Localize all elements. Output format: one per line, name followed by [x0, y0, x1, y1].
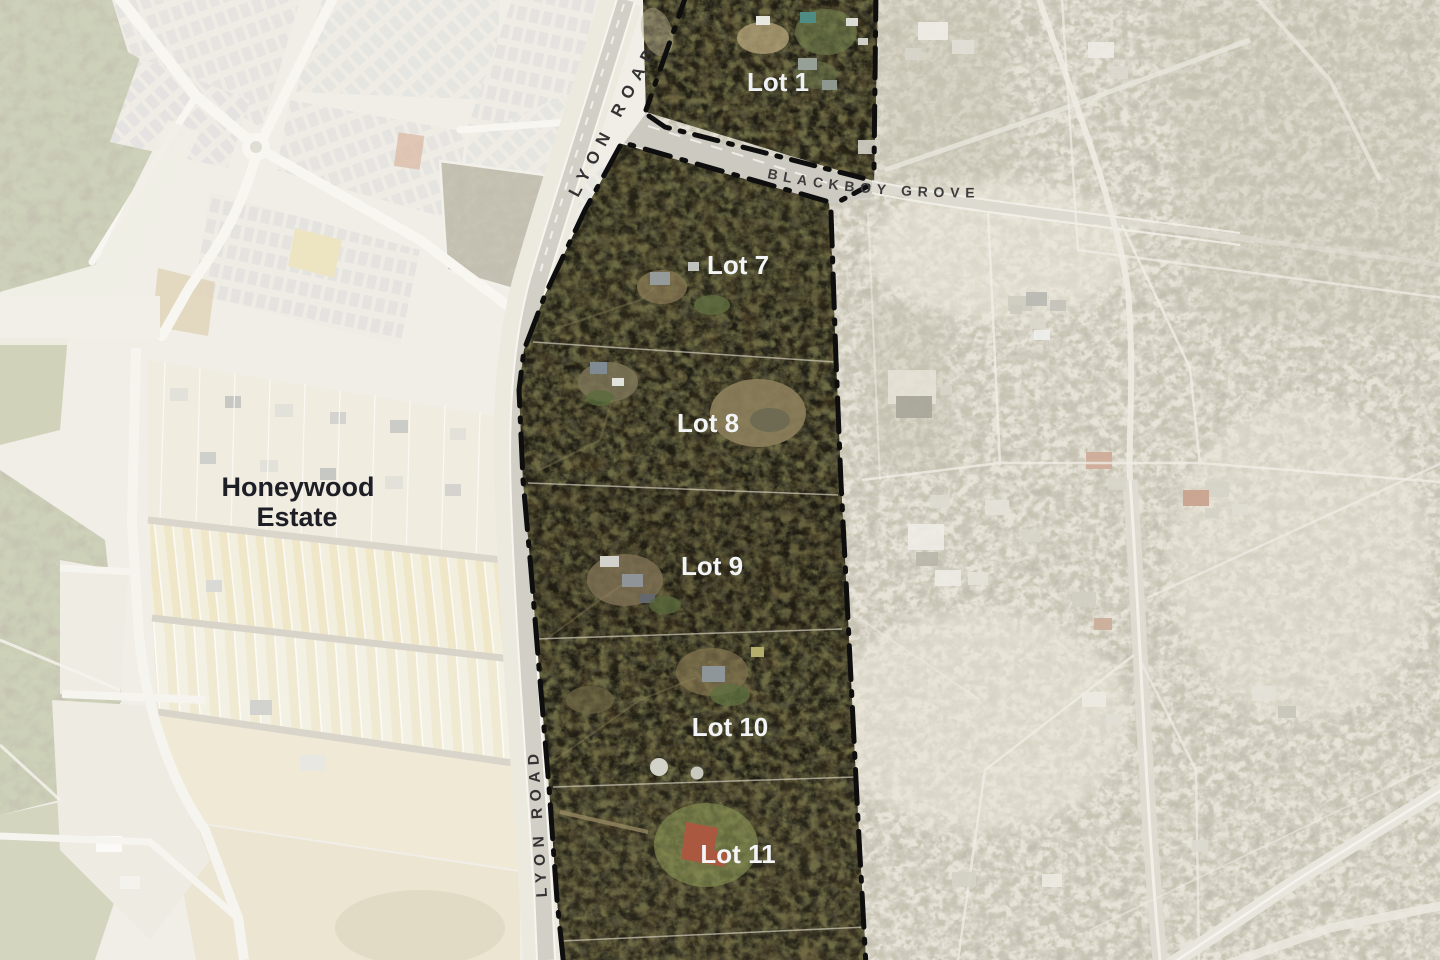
- svg-text:Lot 7: Lot 7: [707, 250, 769, 280]
- svg-text:Estate: Estate: [256, 502, 337, 532]
- svg-text:Lot 11: Lot 11: [700, 839, 775, 869]
- svg-text:Lot 10: Lot 10: [692, 712, 769, 742]
- svg-text:Lot 8: Lot 8: [677, 408, 739, 438]
- svg-text:Lot 1: Lot 1: [747, 67, 809, 97]
- svg-text:Lot 9: Lot 9: [681, 551, 743, 581]
- svg-text:Honeywood: Honeywood: [222, 472, 375, 502]
